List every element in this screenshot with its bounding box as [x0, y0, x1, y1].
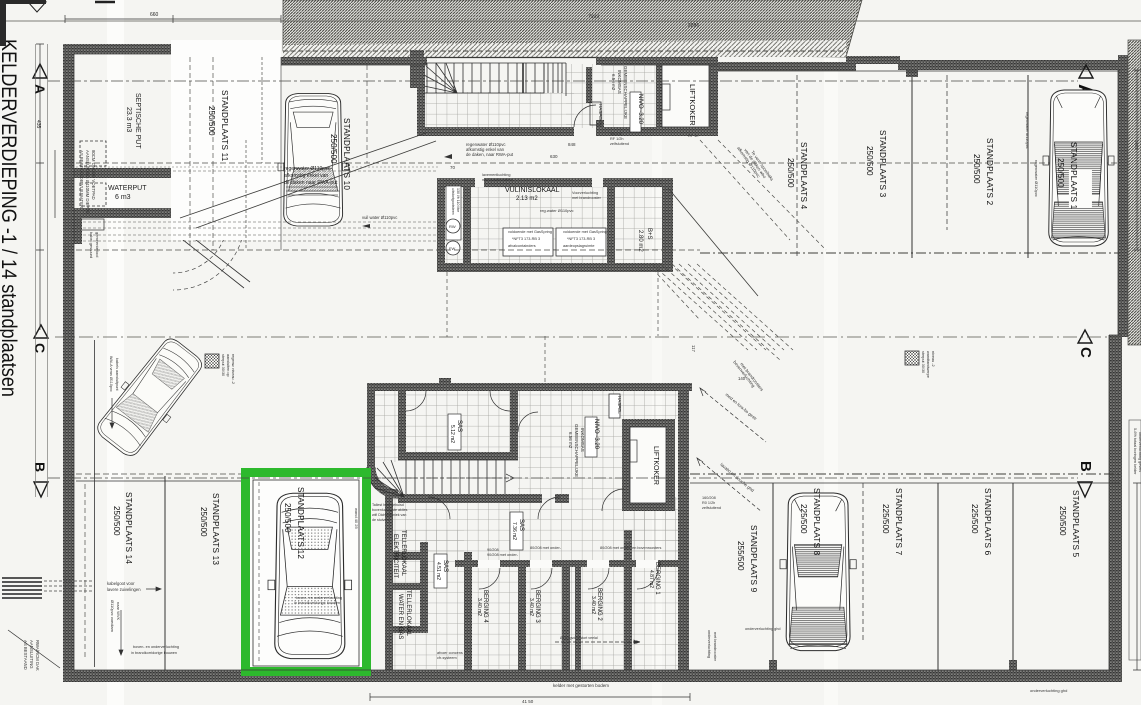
svg-text:cfr-systeem: cfr-systeem: [437, 656, 457, 660]
svg-text:lavere zuivelingen: lavere zuivelingen: [107, 587, 141, 592]
svg-text:660: 660: [150, 12, 159, 18]
svg-text:*NFT3 173-RB 3: *NFT3 173-RB 3: [512, 237, 540, 241]
svg-text:90/208: 90/208: [487, 548, 499, 552]
svg-text:160/208: 160/208: [702, 496, 716, 500]
svg-text:7.36 m2: 7.36 m2: [511, 522, 517, 540]
svg-text:kelder met gestorten bodem: kelder met gestorten bodem: [553, 683, 609, 688]
svg-text:onderverluchting: onderverluchting: [707, 630, 711, 658]
svg-text:gemeenteriool: gemeenteriool: [95, 232, 100, 257]
svg-text:250/500: 250/500: [786, 158, 795, 188]
svg-text:aardeopslagruimte: aardeopslagruimte: [563, 244, 594, 248]
svg-text:in brandkorridorige bouwen: in brandkorridorige bouwen: [294, 601, 340, 605]
svg-text:regenwater Ø110pvc: regenwater Ø110pvc: [1025, 112, 1030, 149]
svg-text:AS BESTAANDE VUILWATER: AS BESTAANDE VUILWATER: [79, 150, 84, 208]
svg-text:255/500: 255/500: [736, 541, 745, 571]
svg-text:250/500: 250/500: [972, 154, 981, 184]
svg-text:STANDPLAATS 4: STANDPLAATS 4: [799, 142, 808, 210]
svg-text:sterput 30/30: sterput 30/30: [221, 354, 225, 376]
svg-text:117: 117: [691, 345, 696, 352]
svg-text:de daken, naar RWA-put: de daken, naar RWA-put: [466, 152, 514, 157]
svg-text:STANDPLAATS 6: STANDPLAATS 6: [983, 488, 992, 556]
svg-text:aansluiten op: aansluiten op: [226, 354, 230, 377]
svg-text:3.40 m2: 3.40 m2: [476, 598, 482, 616]
svg-text:6.56 m2: 6.56 m2: [611, 74, 616, 91]
svg-text:afkomstig enkel van: afkomstig enkel van: [284, 173, 328, 179]
svg-text:848: 848: [568, 142, 576, 147]
svg-text:80CM ONDER VOETPAD: 80CM ONDER VOETPAD: [91, 150, 96, 200]
svg-text:5.12 m2: 5.12 m2: [449, 425, 455, 443]
svg-text:4.87 m2: 4.87 m2: [648, 570, 654, 588]
svg-text:STANDPLAATS 8: STANDPLAATS 8: [812, 488, 821, 556]
svg-text:STANDPLAATS 10: STANDPLAATS 10: [342, 118, 351, 190]
svg-text:HASPEL: HASPEL: [617, 396, 622, 414]
svg-text:GEMEENSCHAPPELIJKE: GEMEENSCHAPPELIJKE: [574, 424, 579, 477]
svg-text:98/208: 98/208: [610, 132, 622, 136]
svg-text:225/500: 225/500: [799, 504, 808, 534]
svg-text:in brandkorridorige bouwen: in brandkorridorige bouwen: [131, 651, 177, 655]
svg-text:250/500: 250/500: [207, 106, 216, 136]
svg-text:3.40 m2: 3.40 m2: [528, 598, 534, 616]
svg-text:R0 1/2h: R0 1/2h: [702, 501, 715, 505]
svg-text:SAS: SAS: [456, 420, 462, 432]
svg-text:C: C: [32, 343, 48, 353]
svg-text:wandtandwerpe: wandtandwerpe: [926, 351, 930, 378]
svg-text:WATER EN GAS: WATER EN GAS: [397, 594, 403, 639]
svg-text:wand 40 25: wand 40 25: [354, 508, 359, 529]
svg-text:WATERPUT: WATERPUT: [108, 185, 147, 192]
svg-text:250/500: 250/500: [112, 506, 121, 536]
svg-text:STANDPLAATS 3: STANDPLAATS 3: [878, 130, 887, 198]
svg-text:RF 1/2h: RF 1/2h: [610, 137, 624, 141]
svg-text:lavementluchting: lavementluchting: [482, 173, 511, 177]
svg-text:23.3 m3: 23.3 m3: [125, 107, 132, 132]
svg-text:225/500: 225/500: [970, 504, 979, 534]
svg-text:Tallest hoof gehuisd: Tallest hoof gehuisd: [372, 503, 404, 507]
svg-text:AANSLUITING Ø110MM DIEPTE: AANSLUITING Ø110MM DIEPTE: [85, 150, 90, 214]
svg-text:130 l/h 110 litre: 130 l/h 110 litre: [456, 188, 460, 212]
svg-text:STANDPLAATS 14: STANDPLAATS 14: [124, 492, 133, 564]
svg-text:NIVO -3.20: NIVO -3.20: [593, 419, 599, 450]
svg-text:voldoende met GasSpring: voldoende met GasSpring: [563, 230, 607, 234]
svg-text:5-6% totaal boringen kelder: 5-6% totaal boringen kelder: [1133, 428, 1137, 475]
svg-text:435: 435: [35, 120, 41, 129]
svg-text:C: C: [1077, 347, 1094, 358]
svg-text:STANDPLAATS 5: STANDPLAATS 5: [1071, 490, 1080, 558]
svg-text:afvoer concens: afvoer concens: [437, 651, 463, 655]
svg-text:afvalcontainders: afvalcontainders: [508, 244, 536, 248]
svg-text:kabels aansluitpunt: kabels aansluitpunt: [115, 358, 119, 391]
svg-text:80/208 met onder-: 80/208 met onder-: [530, 546, 562, 550]
svg-text:250/500: 250/500: [1058, 506, 1067, 536]
svg-text:TELLERLOKAAL: TELLERLOKAAL: [400, 530, 406, 577]
svg-text:6 m3: 6 m3: [115, 194, 131, 201]
svg-text:met brandrooster: met brandrooster: [713, 632, 717, 662]
svg-text:AANSLUITING: AANSLUITING: [29, 640, 34, 669]
svg-text:NIVO -3.20: NIVO -3.20: [637, 94, 643, 125]
svg-text:kabel gestuurd: kabel gestuurd: [89, 232, 94, 258]
svg-text:sterput 30/30: sterput 30/30: [921, 351, 925, 373]
svg-text:70: 70: [450, 165, 456, 170]
svg-text:Ø110 gvd gestort veelal: Ø110 gvd gestort veelal: [560, 636, 598, 640]
svg-text:SAS: SAS: [518, 519, 524, 531]
svg-text:met brandroosters: met brandroosters: [482, 178, 513, 182]
svg-text:zelfsluitend: zelfsluitend: [702, 506, 721, 510]
svg-text:INKOMSAS: INKOMSAS: [617, 70, 622, 94]
svg-text:B: B: [1077, 461, 1094, 472]
svg-text:VULINISLOKAAL: VULINISLOKAAL: [505, 187, 560, 194]
svg-text:reg.water Ø110pvc: reg.water Ø110pvc: [540, 208, 574, 213]
svg-text:STANDPLAATS 13: STANDPLAATS 13: [211, 493, 220, 565]
svg-text:6.56 m2: 6.56 m2: [568, 432, 573, 449]
svg-text:de stuivers: de stuivers: [372, 518, 390, 522]
svg-text:Voorverluchting: Voorverluchting: [572, 191, 598, 195]
svg-text:RWA/RCM DAK: RWA/RCM DAK: [35, 640, 40, 671]
svg-text:4.51 m2: 4.51 m2: [435, 562, 441, 580]
svg-text:WALA vrras Ø110pvc: WALA vrras Ø110pvc: [109, 356, 113, 392]
svg-text:B: B: [32, 462, 48, 472]
svg-text:naar WVK: naar WVK: [116, 602, 121, 621]
svg-text:STANDPLAATS 9: STANDPLAATS 9: [749, 525, 758, 593]
svg-text:boven- en onderverluchting: boven- en onderverluchting: [133, 645, 179, 649]
svg-text:250/500: 250/500: [1056, 158, 1065, 188]
svg-text:2.80 m2: 2.80 m2: [637, 230, 643, 252]
svg-text:kabelgoot voor: kabelgoot voor: [107, 581, 135, 586]
svg-text:HASPEL: HASPEL: [598, 104, 603, 122]
svg-text:2296: 2296: [688, 23, 699, 29]
svg-text:STANDPLAATS 11: STANDPLAATS 11: [220, 90, 229, 162]
svg-text:250/500: 250/500: [329, 134, 338, 164]
svg-text:boven- en onderverluchting: boven- en onderverluchting: [296, 596, 342, 600]
svg-text:250/500: 250/500: [199, 507, 208, 537]
svg-text:630: 630: [550, 154, 558, 159]
svg-text:RW: RW: [449, 224, 456, 229]
svg-text:TELLERLOKAAL: TELLERLOKAAL: [405, 590, 411, 637]
svg-text:SEPTISCHE PUT: SEPTISCHE PUT: [134, 93, 141, 149]
svg-text:STANDPLAATS 2: STANDPLAATS 2: [985, 138, 994, 206]
svg-text:225/500: 225/500: [881, 504, 890, 534]
svg-text:uitstortgootsteen: uitstortgootsteen: [451, 188, 455, 215]
svg-text:41 50: 41 50: [522, 699, 534, 704]
svg-text:wifi Dichterkliniek van: wifi Dichterkliniek van: [372, 513, 406, 517]
svg-text:90/208 met onder-: 90/208 met onder-: [487, 553, 519, 557]
svg-text:B+S: B+S: [646, 228, 652, 240]
svg-text:GEMEENSCHAPPELIJKE: GEMEENSCHAPPELIJKE: [623, 66, 628, 119]
svg-text:Ø110pvc voediam: Ø110pvc voediam: [110, 600, 115, 633]
svg-text:de daken naar RWA-put: de daken naar RWA-put: [284, 180, 338, 186]
svg-text:regenwater Ø110pvc: regenwater Ø110pvc: [1034, 160, 1039, 197]
svg-text:STANDPLAATS 12: STANDPLAATS 12: [296, 487, 305, 559]
svg-text:zelfsluitend: zelfsluitend: [610, 142, 629, 146]
svg-text:LIFTKOKER: LIFTKOKER: [652, 446, 659, 485]
svg-text:ELEKTRICITEIT: ELEKTRICITEIT: [392, 534, 398, 578]
svg-text:250/500: 250/500: [283, 503, 292, 533]
svg-text:bovenluchtigste akties: bovenluchtigste akties: [372, 508, 408, 512]
svg-text:vuil water Ø110pvc: vuil water Ø110pvc: [362, 215, 397, 220]
svg-text:LIFTKOKER: LIFTKOKER: [688, 84, 697, 126]
svg-text:INKOMSAS: INKOMSAS: [580, 428, 585, 452]
svg-text:STANDPLAATS 1: STANDPLAATS 1: [1069, 142, 1078, 210]
svg-text:STANDPLAATS 7: STANDPLAATS 7: [894, 488, 903, 556]
svg-text:*NFT3 173-RB 3: *NFT3 173-RB 3: [567, 237, 595, 241]
svg-text:SAS: SAS: [442, 560, 448, 572]
svg-text:250/500: 250/500: [865, 146, 874, 176]
svg-text:2.13 m2: 2.13 m2: [516, 196, 538, 202]
svg-text:voldoende met GasSpring: voldoende met GasSpring: [508, 230, 552, 234]
svg-text:KELDERVERDIEPING -1 / 14 stand: KELDERVERDIEPING -1 / 14 standplaatsen: [0, 39, 20, 397]
svg-text:7999: 7999: [588, 14, 599, 20]
svg-text:RF 1h: RF 1h: [688, 134, 698, 138]
svg-text:niveau -2: niveau -2: [931, 351, 935, 367]
svg-text:onderverluchting ghd: onderverluchting ghd: [745, 627, 780, 631]
svg-text:onderverluchting ghd: onderverluchting ghd: [1030, 688, 1067, 693]
svg-text:regenw. niveau -2: regenw. niveau -2: [231, 354, 235, 384]
svg-text:3.40 m2: 3.40 m2: [590, 596, 596, 614]
svg-text:met brandrooster: met brandrooster: [572, 196, 602, 200]
svg-text:1919: 1919: [1134, 140, 1139, 150]
